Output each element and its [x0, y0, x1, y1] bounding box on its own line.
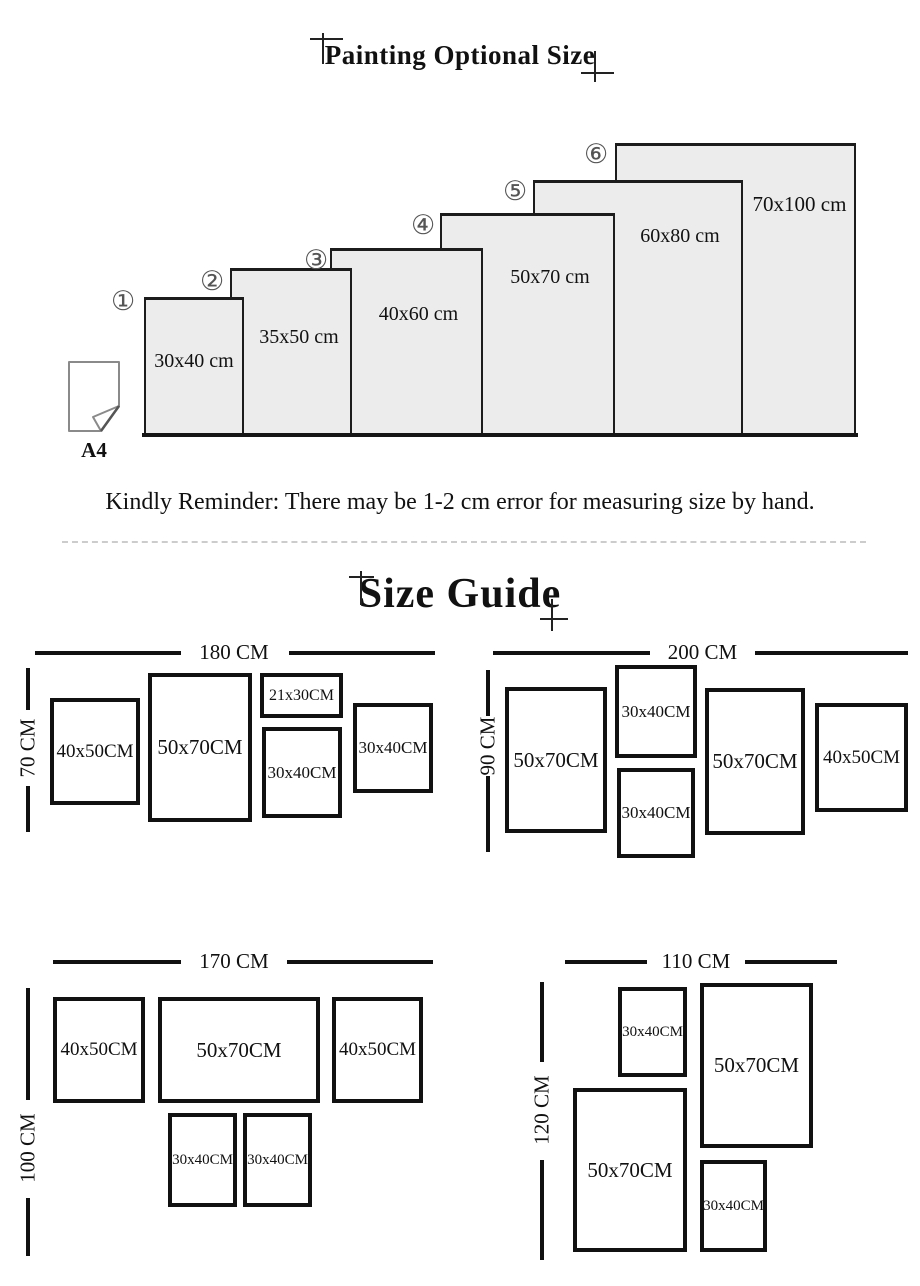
frame-size-label: 40x50CM: [823, 747, 900, 769]
measure-line-vertical: [486, 670, 490, 716]
staircase-baseline: [142, 433, 858, 437]
size-option-rect-30x40: 30x40 cm: [144, 297, 244, 435]
a4-paper-icon: [66, 360, 122, 434]
frame-size-label: 30x40CM: [703, 1198, 764, 1215]
crop-mark-icon: [551, 599, 553, 631]
frame-50x70: 50x70CM: [505, 687, 607, 833]
frame-size-label: 40x50CM: [339, 1039, 416, 1061]
frame-50x70: 50x70CM: [573, 1088, 687, 1252]
frame-size-label: 40x50CM: [60, 1039, 137, 1061]
frame-30x40: 30x40CM: [353, 703, 433, 793]
frame-size-label: 50x70CM: [196, 1038, 281, 1063]
measure-height-label: 100 CM: [16, 1113, 41, 1182]
measure-height-label: 70 CM: [16, 719, 41, 778]
frame-size-label: 30x40CM: [622, 1024, 683, 1041]
measure-line-horizontal: [493, 651, 650, 655]
frame-50x70-landscape: 50x70CM: [158, 997, 320, 1103]
frame-30x40: 30x40CM: [700, 1160, 767, 1252]
measure-line-vertical: [26, 786, 30, 832]
measure-line-horizontal: [53, 960, 181, 964]
crop-mark-icon: [310, 38, 343, 40]
size-option-label: 40x60 cm: [354, 303, 483, 326]
measure-line-horizontal: [565, 960, 647, 964]
measure-line-horizontal: [287, 960, 433, 964]
size-option-rect-35x50: 35x50 cm: [230, 268, 352, 435]
measure-width-label: 180 CM: [181, 640, 287, 665]
frame-21x30: 21x30CM: [260, 673, 343, 718]
measure-width-label: 200 CM: [650, 640, 755, 665]
frame-size-label: 21x30CM: [269, 687, 334, 705]
frame-30x40: 30x40CM: [168, 1113, 237, 1207]
a4-label: A4: [66, 438, 122, 463]
frame-50x70: 50x70CM: [700, 983, 813, 1148]
measure-line-horizontal: [289, 651, 435, 655]
step-number-badge: ⑥: [584, 141, 608, 168]
frame-size-label: 50x70CM: [712, 749, 797, 774]
measure-height-label: 120 CM: [530, 1075, 555, 1144]
dashed-divider: [62, 541, 866, 543]
size-option-label: 70x100 cm: [743, 192, 856, 217]
measure-width-label: 110 CM: [647, 949, 745, 974]
step-number-badge: ④: [411, 212, 435, 239]
size-option-label: 30x40 cm: [146, 350, 242, 373]
measure-line-vertical: [540, 982, 544, 1062]
crop-mark-icon: [594, 51, 596, 82]
frame-size-label: 30x40CM: [247, 1152, 308, 1169]
measure-line-horizontal: [745, 960, 837, 964]
crop-mark-icon: [349, 576, 374, 578]
frame-size-label: 30x40CM: [622, 702, 691, 722]
measure-line-vertical: [26, 668, 30, 710]
measure-line-vertical: [540, 1160, 544, 1260]
frame-40x50: 40x50CM: [50, 698, 140, 805]
measure-line-horizontal: [755, 651, 908, 655]
measure-line-vertical: [486, 776, 490, 852]
measure-line-vertical: [26, 988, 30, 1100]
crop-mark-icon: [581, 72, 614, 74]
frame-size-label: 30x40CM: [172, 1152, 233, 1169]
frame-30x40: 30x40CM: [618, 987, 687, 1077]
frame-size-label: 30x40CM: [622, 803, 691, 823]
frame-30x40: 30x40CM: [243, 1113, 312, 1207]
frame-40x50: 40x50CM: [53, 997, 145, 1103]
measure-line-horizontal: [35, 651, 181, 655]
size-option-label: 50x70 cm: [485, 266, 615, 289]
page-title: Painting Optional Size: [0, 40, 920, 71]
size-option-label: 35x50 cm: [246, 326, 352, 349]
step-number-badge: ②: [200, 268, 224, 295]
frame-size-label: 50x70CM: [714, 1053, 799, 1078]
painting-size-infographic: { "page": { "title": "Painting Optional …: [0, 0, 920, 1286]
frame-30x40: 30x40CM: [617, 768, 695, 858]
step-number-badge: ③: [304, 247, 328, 274]
frame-size-label: 40x50CM: [56, 741, 133, 763]
frame-30x40: 30x40CM: [615, 665, 697, 758]
frame-size-label: 50x70CM: [513, 748, 598, 773]
frame-size-label: 30x40CM: [268, 763, 337, 783]
size-option-label: 60x80 cm: [617, 225, 743, 248]
step-number-badge: ①: [111, 288, 135, 315]
frame-50x70: 50x70CM: [705, 688, 805, 835]
frame-40x50: 40x50CM: [332, 997, 423, 1103]
frame-size-label: 50x70CM: [157, 735, 242, 760]
frame-30x40: 30x40CM: [262, 727, 342, 818]
frame-50x70: 50x70CM: [148, 673, 252, 822]
frame-size-label: 50x70CM: [587, 1158, 672, 1183]
measure-width-label: 170 CM: [181, 949, 287, 974]
frame-40x50: 40x50CM: [815, 703, 908, 812]
crop-mark-icon: [540, 618, 568, 620]
step-number-badge: ⑤: [503, 178, 527, 205]
measure-height-label: 90 CM: [476, 717, 501, 776]
frame-size-label: 30x40CM: [359, 738, 428, 758]
measure-line-vertical: [26, 1198, 30, 1256]
size-option-rect-40x60: 40x60 cm: [330, 248, 483, 435]
size-guide-title: Size Guide: [0, 570, 920, 618]
reminder-text: Kindly Reminder: There may be 1-2 cm err…: [0, 489, 920, 516]
